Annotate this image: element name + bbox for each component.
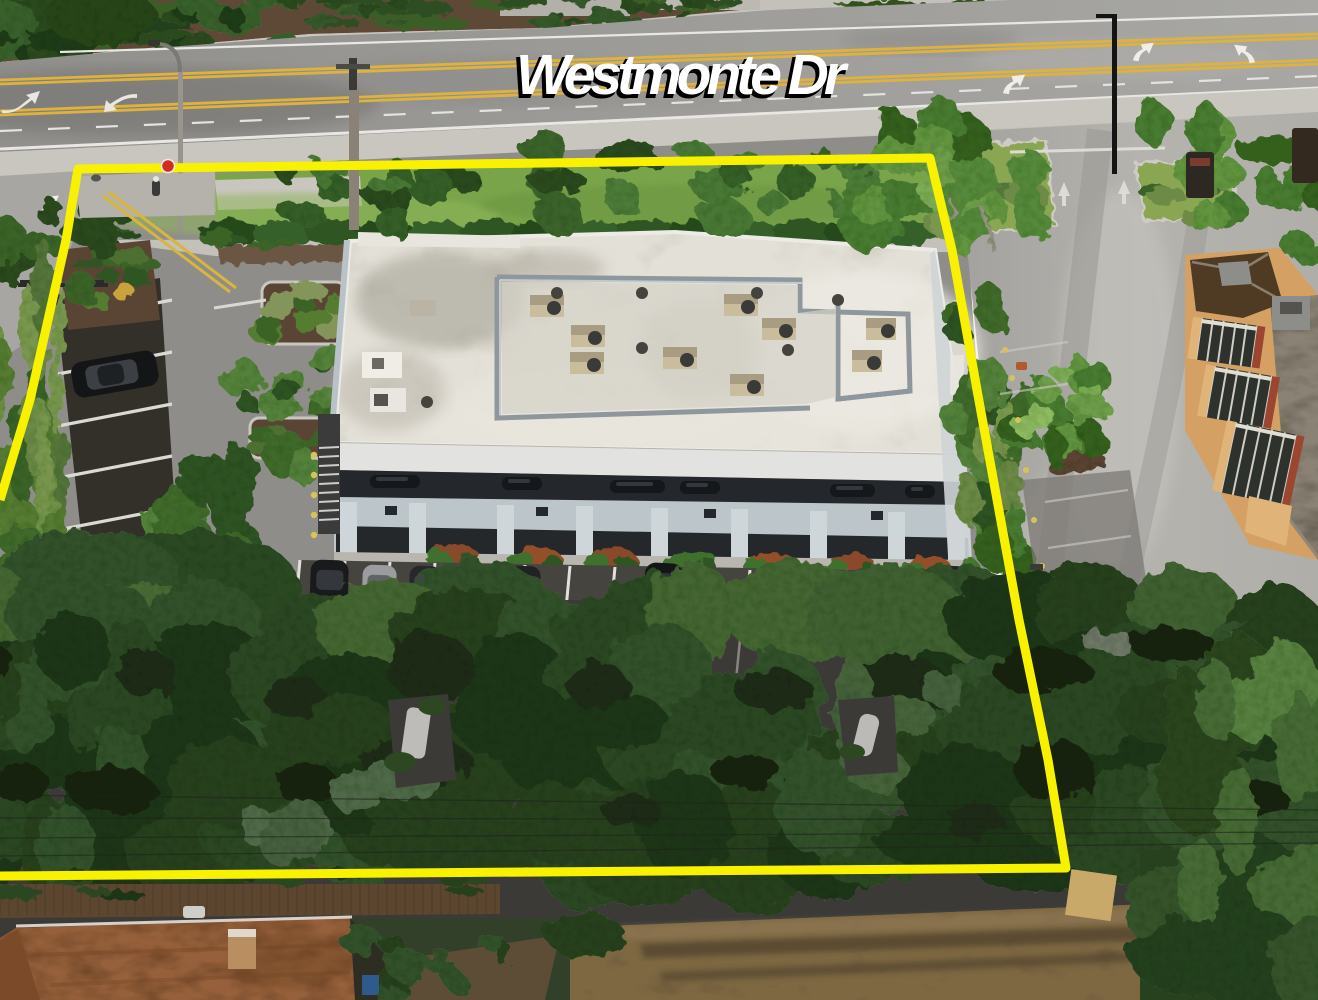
svg-text:Westmonte Dr: Westmonte Dr [516,43,849,107]
